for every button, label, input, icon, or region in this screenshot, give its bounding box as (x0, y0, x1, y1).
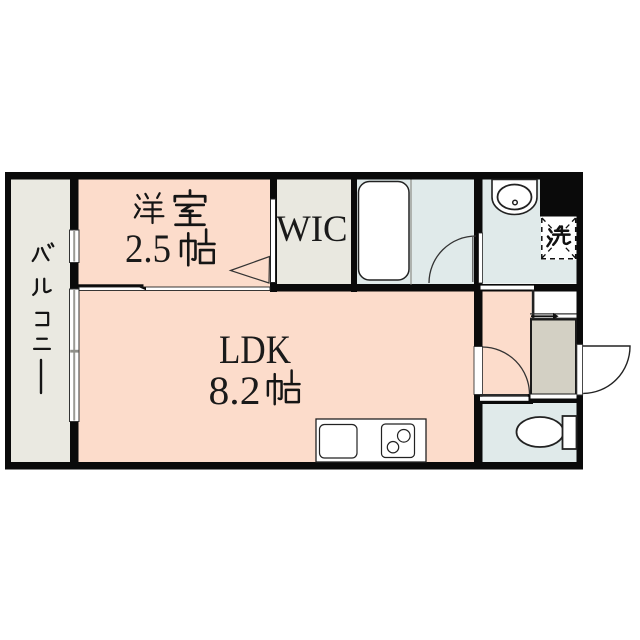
svg-text:2.5: 2.5 (125, 226, 171, 271)
svg-text:LDK: LDK (219, 327, 291, 372)
svg-text:WIC: WIC (276, 209, 348, 250)
svg-text:8.2: 8.2 (209, 368, 261, 413)
